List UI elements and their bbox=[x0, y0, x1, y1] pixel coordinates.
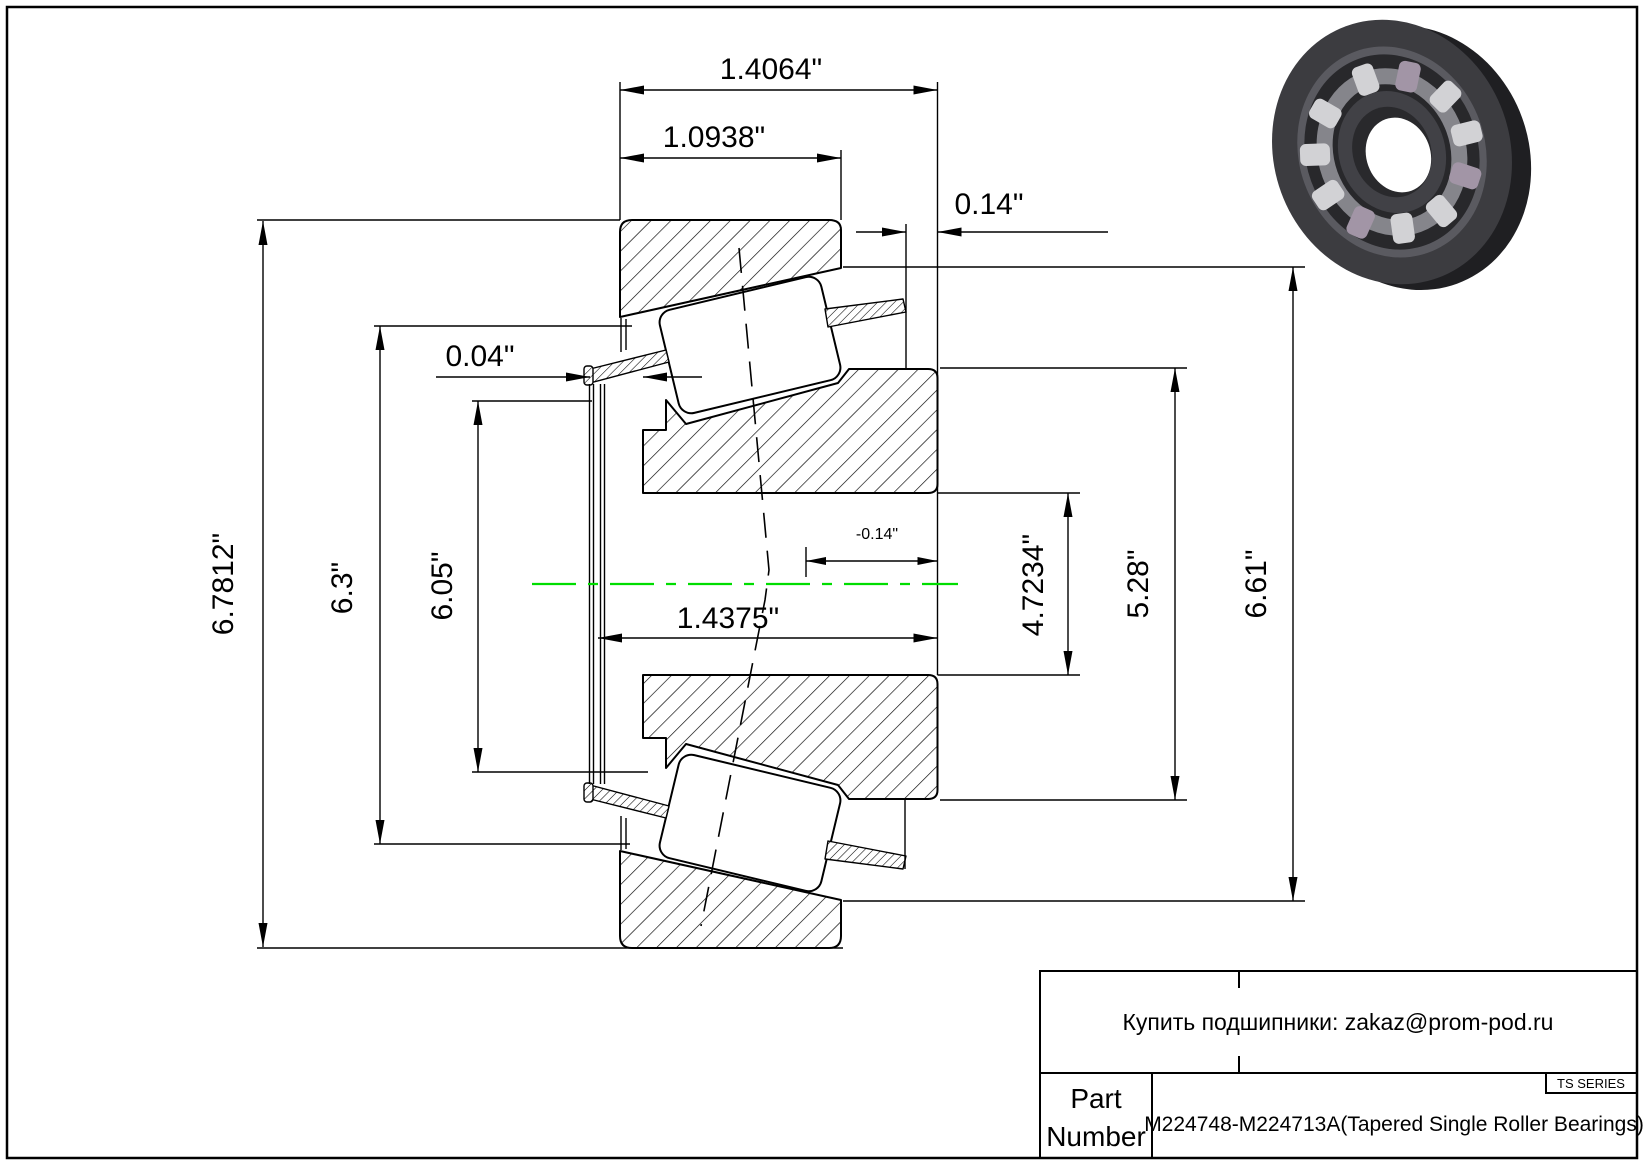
dim-cage-od: 6.05" bbox=[426, 551, 459, 620]
contact-text: Купить подшипники: zakaz@prom-pod.ru bbox=[1123, 1009, 1554, 1035]
dim-cone-width: 1.4375" bbox=[677, 602, 779, 635]
dim-standout: 0.14" bbox=[954, 188, 1023, 221]
part-label-line2: Number bbox=[1046, 1121, 1146, 1152]
dim-offset: -0.14" bbox=[856, 526, 898, 543]
series-text: TS SERIES bbox=[1557, 1076, 1625, 1091]
dim-bore-ref: 4.7234" bbox=[1017, 534, 1050, 636]
part-label-line1: Part bbox=[1070, 1083, 1122, 1114]
dim-lip-gap: 0.04" bbox=[445, 340, 514, 373]
dim-rib-od: 5.28" bbox=[1122, 549, 1155, 618]
dim-cup-od: 6.61" bbox=[1240, 549, 1273, 618]
dim-flange-od: 6.7812" bbox=[207, 533, 240, 635]
bearing-drawing-svg: 1.4064" 1.0938" 0.14" 0.04" -0.14" 1.437… bbox=[0, 0, 1649, 1167]
dim-cup-width: 1.0938" bbox=[663, 121, 765, 154]
title-block-texts: Купить подшипники: zakaz@prom-pod.ru Par… bbox=[1046, 1009, 1644, 1152]
bearing-3d-image bbox=[1235, 0, 1568, 330]
dim-flange-width: 1.4064" bbox=[720, 53, 822, 86]
drawing-page: 1.4064" 1.0938" 0.14" 0.04" -0.14" 1.437… bbox=[0, 0, 1649, 1167]
dim-back-od: 6.3" bbox=[326, 562, 359, 614]
part-number-text: M224748-M224713A(Tapered Single Roller B… bbox=[1144, 1113, 1644, 1136]
